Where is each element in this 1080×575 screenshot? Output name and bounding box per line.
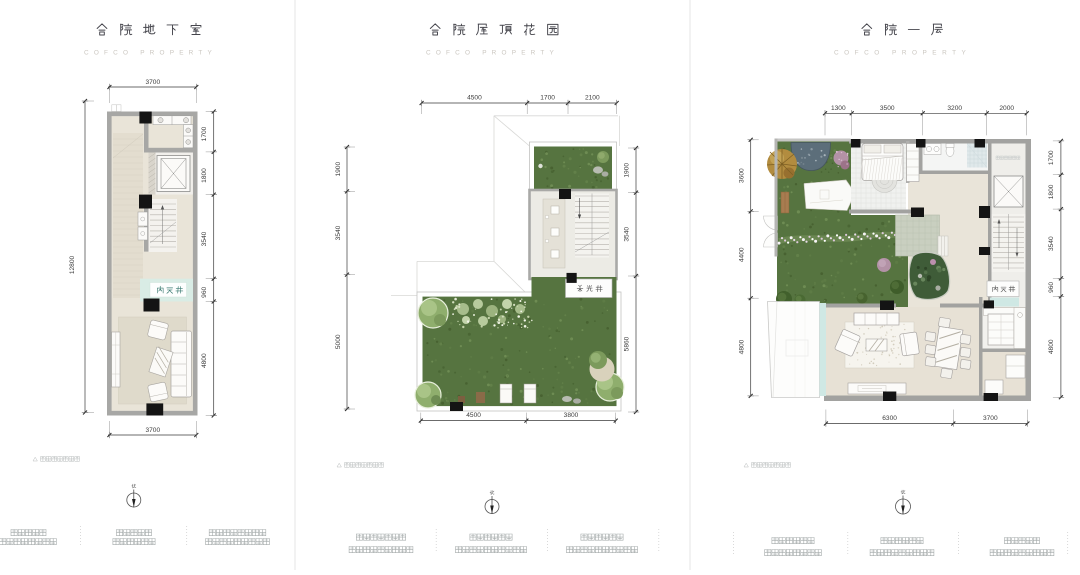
svg-text:6300: 6300: [882, 415, 897, 422]
svg-text:3700: 3700: [145, 427, 160, 434]
svg-text:COFCO PROPERTY: COFCO PROPERTY: [426, 50, 558, 57]
svg-text:3540: 3540: [335, 225, 342, 240]
svg-text:3700: 3700: [983, 415, 998, 422]
svg-text:3540: 3540: [624, 227, 631, 242]
svg-text:1900: 1900: [624, 163, 631, 178]
svg-text:COFCO PROPERTY: COFCO PROPERTY: [834, 50, 970, 57]
svg-text:3540: 3540: [1048, 236, 1055, 251]
svg-text:4500: 4500: [467, 95, 482, 102]
svg-text:5000: 5000: [335, 334, 342, 349]
svg-text:4800: 4800: [739, 339, 746, 354]
svg-text:3800: 3800: [564, 412, 579, 419]
svg-text:1700: 1700: [201, 126, 208, 141]
svg-text:2000: 2000: [999, 105, 1014, 112]
svg-text:3540: 3540: [201, 231, 208, 246]
svg-text:960: 960: [201, 286, 208, 297]
svg-text:4500: 4500: [466, 412, 481, 419]
svg-text:5860: 5860: [624, 336, 631, 351]
svg-text:1700: 1700: [1048, 150, 1055, 165]
svg-text:1800: 1800: [201, 168, 208, 183]
svg-text:4800: 4800: [201, 353, 208, 368]
svg-text:2100: 2100: [585, 95, 600, 102]
svg-text:1900: 1900: [335, 162, 342, 177]
svg-text:4800: 4800: [1048, 339, 1055, 354]
svg-text:1300: 1300: [831, 105, 846, 112]
svg-text:12800: 12800: [69, 256, 76, 275]
svg-text:1700: 1700: [540, 95, 555, 102]
svg-text:1800: 1800: [1048, 184, 1055, 199]
svg-text:3700: 3700: [145, 79, 160, 86]
svg-text:960: 960: [1048, 282, 1055, 293]
svg-text:3500: 3500: [880, 105, 895, 112]
svg-text:COFCO PROPERTY: COFCO PROPERTY: [84, 50, 216, 57]
svg-text:4400: 4400: [739, 247, 746, 262]
svg-text:3600: 3600: [739, 168, 746, 183]
svg-text:3200: 3200: [947, 105, 962, 112]
